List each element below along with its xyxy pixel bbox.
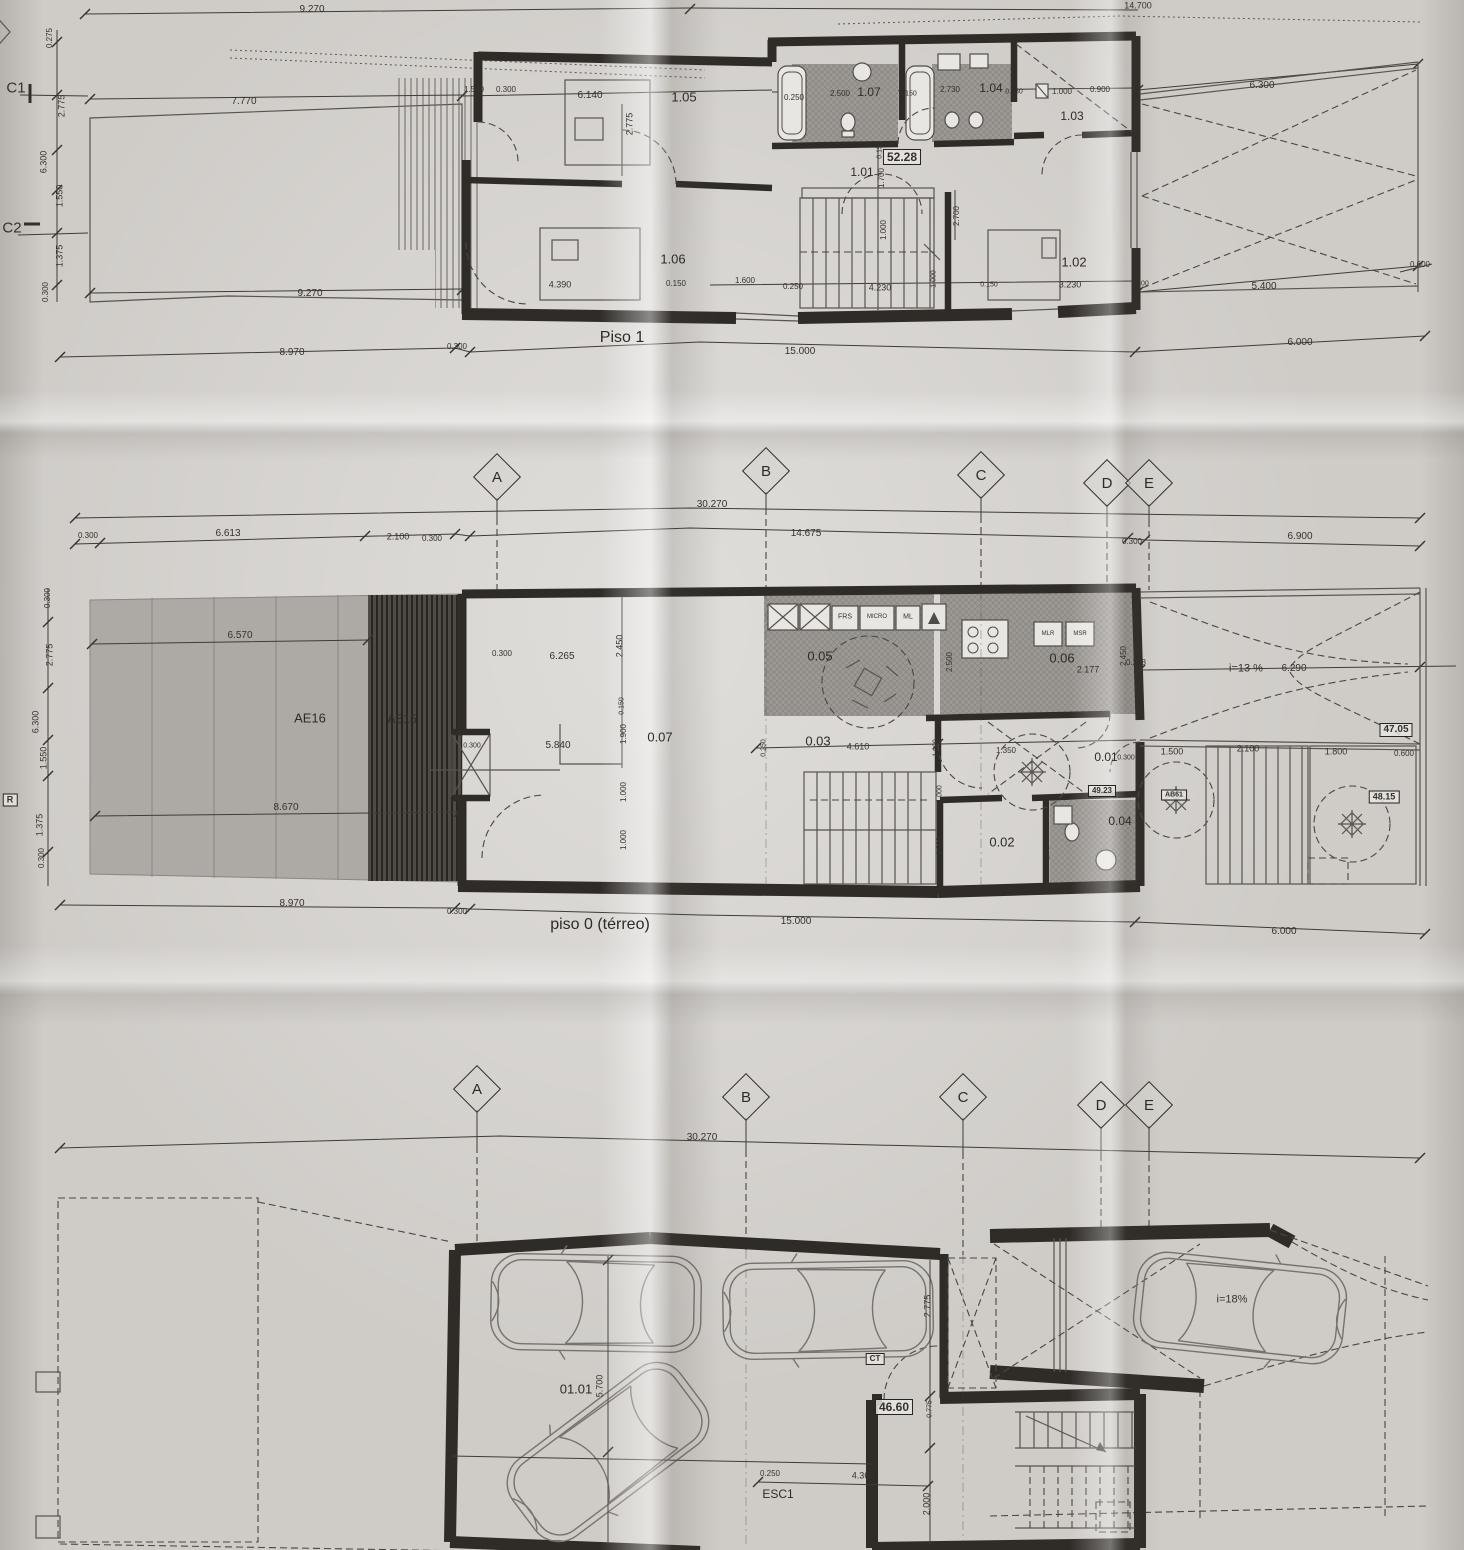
dim-label: 0.228	[1126, 659, 1146, 667]
dim-label: 15.000	[781, 917, 812, 927]
dim-label: 1.600	[735, 277, 755, 285]
dim-label: 2.775	[46, 644, 55, 667]
dim-label: 0.150	[980, 282, 998, 289]
dim-label: 0.300	[1117, 755, 1135, 762]
dim-label: 4.610	[847, 743, 870, 752]
dim-label: 5.840	[545, 741, 570, 751]
dim-label: 0.300	[492, 650, 512, 658]
grid-marker-A: A	[473, 453, 521, 501]
dim-label: 2.500	[830, 90, 850, 98]
dim-label: 6.140	[577, 91, 602, 101]
dim-label: 1.500	[1161, 748, 1184, 757]
dim-label: 0.250	[760, 1470, 780, 1478]
dim-label: i=13 %	[1229, 664, 1263, 675]
dim-label: 5.700	[596, 1375, 605, 1398]
dim-label: 1.000	[937, 785, 944, 803]
dim-label: 0.150	[619, 697, 626, 715]
dim-label: 9.270	[297, 289, 322, 299]
dim-label: 9.270	[299, 5, 324, 15]
room-label: 0.02	[989, 836, 1014, 849]
grid-marker-D: D	[1077, 1081, 1125, 1129]
room-label: 0.05	[807, 650, 832, 663]
dim-label: 5.400	[1251, 282, 1276, 292]
dim-label: 0.300	[447, 343, 467, 351]
dim-label: 1.000	[1052, 88, 1072, 96]
dim-label: 0.150	[877, 141, 884, 159]
dim-label: 2.775	[626, 113, 635, 136]
dim-label: 2.500	[946, 652, 954, 672]
dim-label: 2.775	[924, 1295, 933, 1318]
room-label: 1.07	[857, 86, 880, 98]
dim-label: 2.100	[387, 533, 410, 542]
dim-label: 6.290	[1281, 664, 1306, 674]
dim-label: AB61	[1161, 790, 1187, 801]
dim-label: 0.900	[1090, 86, 1110, 94]
dim-label: 2.100	[1237, 745, 1260, 754]
dim-label: 2.775	[58, 95, 67, 118]
dim-label: 0.150	[899, 91, 917, 98]
dim-label: 6.900	[1287, 532, 1312, 542]
area-label: 49.23	[1088, 785, 1116, 797]
dim-label: 0.775	[927, 1400, 934, 1418]
room-label: 0.03	[805, 735, 830, 748]
dim-label: MICRO	[867, 614, 887, 620]
dim-label: 0.300	[1131, 281, 1149, 288]
dim-label: MSR	[1073, 631, 1086, 637]
dim-label: 4.390	[549, 281, 572, 290]
room-label: AE16	[294, 712, 326, 725]
grid-marker-A: A	[453, 1065, 501, 1113]
dim-label: 1.000	[937, 837, 944, 855]
dim-label: 1.000	[620, 830, 628, 850]
dim-label: 2.000	[923, 1493, 932, 1516]
dim-label: 3.230	[1059, 281, 1082, 290]
area-label: 46.60	[875, 1399, 913, 1415]
dim-label: 15.000	[785, 347, 816, 357]
room-label: 1.06	[660, 253, 685, 266]
dim-label: 6.000	[1271, 927, 1296, 937]
dim-label: ML	[903, 614, 913, 621]
room-label: 0.04	[1108, 815, 1131, 827]
plan-title-piso0: piso 0 (térreo)	[550, 916, 650, 934]
area-label: 48.15	[1369, 791, 1400, 804]
room-label: AE15	[387, 713, 416, 725]
dim-label: 0.250	[783, 283, 803, 291]
dim-label: FRS	[838, 614, 852, 621]
dim-label: 8.970	[279, 348, 304, 358]
dim-label: 0.150	[666, 280, 686, 288]
dim-label: 6.300	[32, 711, 41, 734]
dim-label: 8.670	[273, 803, 298, 813]
dim-label: R	[3, 794, 18, 807]
scanned-floorplan-sheet: Piso 1 piso 0 (térreo) 9.27014.700C1C20.…	[0, 0, 1464, 1550]
dim-label: 0.300	[463, 743, 481, 750]
room-label: 1.01	[850, 166, 873, 178]
dim-label: CT	[866, 1353, 885, 1365]
dim-label: 7.770	[231, 97, 256, 107]
grid-marker-E: E	[1125, 1081, 1173, 1129]
grid-marker-D: D	[1083, 459, 1131, 507]
dim-label: 1.700	[878, 168, 886, 188]
room-label: 1.05	[671, 91, 696, 104]
dim-label: 0.600	[1410, 261, 1430, 269]
dim-label: 4.360	[852, 1472, 875, 1481]
plan-title-piso1: Piso 1	[600, 329, 644, 347]
dim-label: 1.900	[620, 724, 628, 744]
area-label: 47.05	[1379, 723, 1412, 737]
dim-label: 1.375	[56, 245, 65, 268]
room-label: 0.06	[1049, 652, 1074, 665]
dim-label: 1.375	[36, 814, 45, 837]
dim-label: 0.300	[447, 908, 467, 916]
dim-label: 4.230	[869, 284, 892, 293]
dim-label: 6.300	[40, 151, 49, 174]
dim-label: 1.500	[464, 86, 484, 94]
room-label: 0.01	[1094, 751, 1117, 763]
dim-label: 8.970	[279, 899, 304, 909]
dim-label: 6.000	[1287, 338, 1312, 348]
labels-layer: Piso 1 piso 0 (térreo) 9.27014.700C1C20.…	[0, 0, 1464, 1550]
dim-label: 0.250	[784, 94, 804, 102]
area-label: 52.28	[883, 149, 921, 165]
grid-axis-label: C1	[6, 81, 25, 96]
dim-label: 1.550	[56, 185, 65, 208]
dim-label: 2.700	[953, 206, 961, 226]
grid-marker-C: C	[939, 1073, 987, 1121]
room-label: 01.01	[560, 1383, 593, 1396]
room-label: 1.03	[1060, 110, 1083, 122]
dim-label: 1.550	[40, 747, 49, 770]
dim-label: 2.450	[616, 635, 625, 658]
dim-label: 30.270	[687, 1133, 718, 1143]
dim-label: 1.000	[620, 782, 628, 802]
dim-label: 0.300	[496, 86, 516, 94]
dim-label: 14.700	[1124, 2, 1152, 11]
grid-marker-C: C	[957, 451, 1005, 499]
dim-label: 0.250	[761, 739, 768, 757]
dim-label: i=18%	[1217, 1295, 1248, 1306]
room-label: 0.07	[647, 731, 672, 744]
grid-marker-B: B	[742, 447, 790, 495]
dim-label: 1.350	[996, 747, 1016, 755]
grid-marker-E: E	[1125, 459, 1173, 507]
dim-label: 0.300	[422, 535, 442, 543]
dim-label: 0.300	[38, 848, 46, 868]
dim-label: 1.000	[931, 270, 938, 288]
room-label: ESC1	[762, 1488, 793, 1500]
dim-label: 0.600	[1394, 750, 1414, 758]
grid-axis-label: C2	[2, 221, 21, 236]
room-label: 1.02	[1061, 256, 1086, 269]
dim-label: 6.265	[549, 652, 574, 662]
dim-label: 14.675	[791, 529, 822, 539]
dim-label: 1.800	[1325, 748, 1348, 757]
dim-label: 1.000	[880, 220, 888, 240]
dim-label: 0.275	[46, 28, 54, 48]
dim-label: 0.300	[44, 588, 52, 608]
dim-label: 0.300	[42, 282, 50, 302]
dim-label: 1.75	[1045, 846, 1052, 860]
dim-label: 6.570	[227, 631, 252, 641]
room-label: 1.04	[979, 82, 1002, 94]
dim-label: 0.300	[78, 532, 98, 540]
dim-label: 0.150	[1005, 89, 1023, 96]
dim-label: 1.000	[933, 739, 940, 757]
grid-marker-B: B	[722, 1073, 770, 1121]
dim-label: 2.177	[1077, 666, 1100, 675]
dim-label: 2.730	[940, 86, 960, 94]
dim-label: 6.613	[215, 529, 240, 539]
dim-label: 6.300	[1249, 81, 1274, 91]
dim-label: 30.270	[697, 500, 728, 510]
dim-label: MLR	[1042, 631, 1055, 637]
dim-label: 0.300	[1122, 538, 1142, 546]
